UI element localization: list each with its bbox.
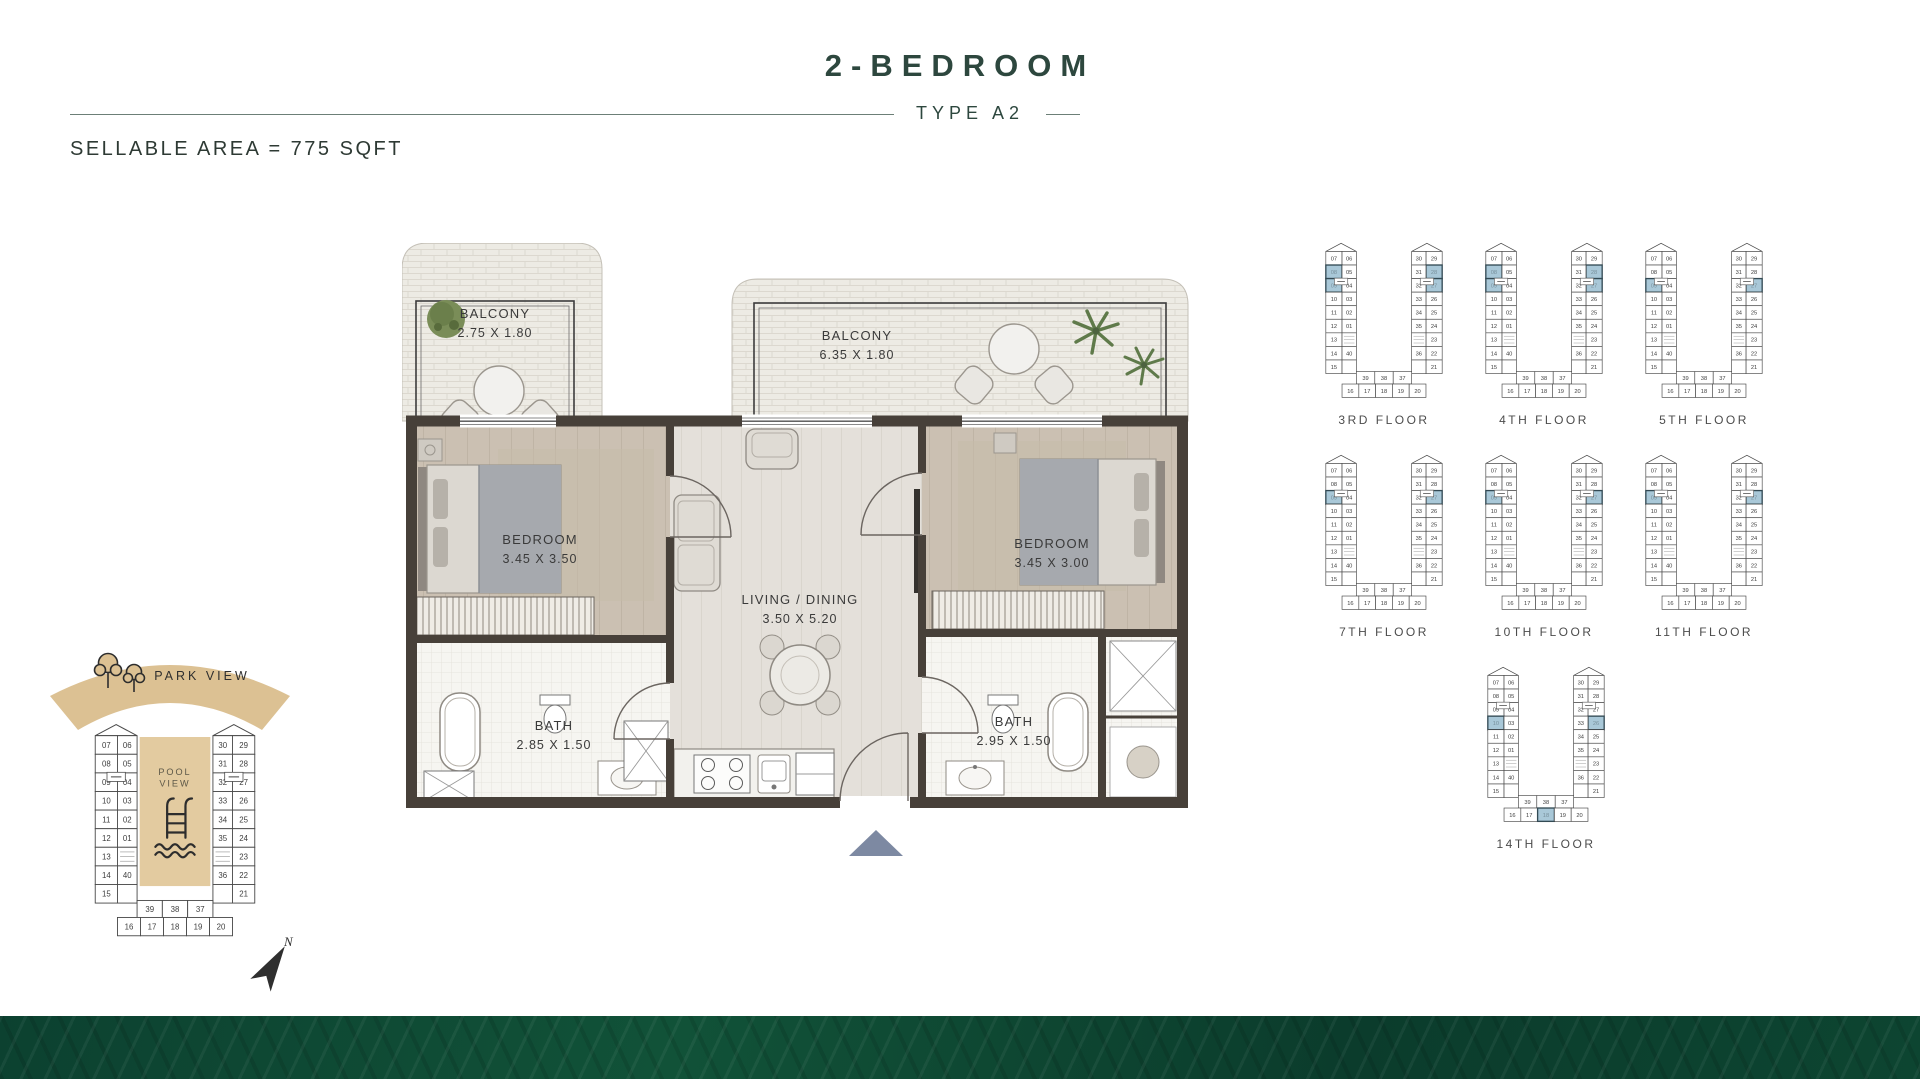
- svg-text:10: 10: [1491, 297, 1497, 303]
- wardrobe-right-icon: [932, 591, 1104, 629]
- svg-text:23: 23: [239, 852, 248, 861]
- svg-text:17: 17: [1364, 389, 1370, 395]
- svg-text:25: 25: [1431, 311, 1437, 317]
- svg-text:31: 31: [1736, 270, 1742, 276]
- svg-text:06: 06: [1666, 256, 1672, 262]
- floor-plan: BALCONY2.75 X 1.80 BALCONY6.35 X 1.80 BE…: [402, 243, 1192, 869]
- svg-text:29: 29: [1591, 468, 1597, 474]
- svg-text:13: 13: [1331, 550, 1337, 556]
- svg-text:12: 12: [1651, 324, 1657, 330]
- svg-text:26: 26: [1751, 297, 1757, 303]
- svg-text:36: 36: [1416, 563, 1422, 569]
- svg-text:23: 23: [1591, 338, 1597, 344]
- svg-text:03: 03: [1508, 721, 1514, 727]
- svg-text:40: 40: [1666, 351, 1672, 357]
- svg-text:16: 16: [125, 922, 134, 931]
- svg-text:19: 19: [1560, 813, 1566, 819]
- svg-text:15: 15: [1491, 365, 1497, 371]
- svg-text:12: 12: [1331, 324, 1337, 330]
- building-plan: 0729063008280531092704321026033311250234…: [1322, 240, 1446, 400]
- svg-text:24: 24: [239, 834, 248, 843]
- svg-text:06: 06: [1506, 468, 1512, 474]
- park-view-arc: PARK VIEW: [44, 630, 296, 734]
- svg-text:30: 30: [1416, 468, 1422, 474]
- svg-text:21: 21: [1591, 577, 1597, 583]
- svg-text:17: 17: [1526, 813, 1532, 819]
- svg-text:14: 14: [1491, 351, 1498, 357]
- svg-text:07: 07: [1331, 256, 1337, 262]
- svg-text:29: 29: [1593, 680, 1599, 686]
- svg-text:05: 05: [1508, 694, 1514, 700]
- svg-text:37: 37: [1559, 588, 1565, 594]
- svg-text:13: 13: [102, 852, 111, 861]
- svg-text:25: 25: [1431, 523, 1437, 529]
- svg-text:11: 11: [1491, 523, 1497, 529]
- svg-text:26: 26: [239, 797, 248, 806]
- svg-text:33: 33: [1416, 297, 1422, 303]
- svg-text:07: 07: [1491, 256, 1497, 262]
- svg-text:12: 12: [1331, 536, 1337, 542]
- floor-label: 11TH FLOOR: [1642, 625, 1766, 639]
- svg-text:12: 12: [1651, 536, 1657, 542]
- svg-text:18: 18: [1541, 389, 1547, 395]
- svg-text:06: 06: [1346, 256, 1352, 262]
- unit-type-label: TYPE A2: [898, 103, 1042, 124]
- svg-text:03: 03: [1346, 297, 1352, 303]
- svg-text:24: 24: [1431, 324, 1438, 330]
- svg-text:01: 01: [1506, 324, 1512, 330]
- svg-text:33: 33: [1416, 509, 1422, 515]
- svg-text:39: 39: [1524, 800, 1530, 806]
- svg-text:38: 38: [1701, 588, 1707, 594]
- entry-arrow-icon: [849, 830, 903, 856]
- svg-text:30: 30: [218, 741, 227, 750]
- svg-text:06: 06: [1346, 468, 1352, 474]
- svg-text:20: 20: [1414, 389, 1420, 395]
- svg-text:01: 01: [1346, 536, 1352, 542]
- svg-text:17: 17: [148, 922, 157, 931]
- svg-text:18: 18: [1381, 601, 1387, 607]
- svg-text:35: 35: [218, 834, 227, 843]
- svg-text:34: 34: [1578, 735, 1585, 741]
- svg-text:39: 39: [1522, 376, 1528, 382]
- svg-text:18: 18: [171, 922, 180, 931]
- svg-text:28: 28: [1591, 482, 1597, 488]
- page-title: 2-BEDROOM: [0, 48, 1920, 84]
- svg-text:34: 34: [1576, 523, 1583, 529]
- svg-text:01: 01: [1666, 536, 1672, 542]
- svg-text:31: 31: [1576, 482, 1582, 488]
- svg-text:39: 39: [145, 905, 154, 914]
- svg-text:18: 18: [1701, 601, 1707, 607]
- svg-text:40: 40: [1506, 351, 1512, 357]
- svg-text:20: 20: [1734, 389, 1740, 395]
- table-icon: [474, 366, 524, 416]
- svg-text:14: 14: [1331, 351, 1338, 357]
- svg-text:26: 26: [1593, 721, 1599, 727]
- label-bedroom-right: BEDROOM3.45 X 3.00: [1014, 535, 1090, 572]
- svg-text:08: 08: [1331, 270, 1337, 276]
- svg-text:11: 11: [1651, 523, 1657, 529]
- svg-text:07: 07: [1651, 256, 1657, 262]
- svg-text:20: 20: [1414, 601, 1420, 607]
- svg-text:37: 37: [196, 905, 205, 914]
- north-arrow: N: [244, 926, 304, 1000]
- balcony-left-terrace: [402, 243, 602, 442]
- svg-text:14: 14: [1493, 775, 1500, 781]
- svg-text:07: 07: [102, 741, 111, 750]
- svg-text:24: 24: [1751, 536, 1758, 542]
- svg-text:21: 21: [1431, 577, 1437, 583]
- svg-text:21: 21: [1751, 577, 1757, 583]
- svg-text:36: 36: [218, 871, 227, 880]
- svg-text:15: 15: [1331, 577, 1337, 583]
- toilet-icon: [540, 695, 570, 705]
- svg-text:30: 30: [1736, 256, 1742, 262]
- svg-text:11: 11: [1331, 523, 1337, 529]
- svg-text:10: 10: [102, 797, 111, 806]
- svg-text:33: 33: [1736, 297, 1742, 303]
- svg-text:21: 21: [1591, 365, 1597, 371]
- svg-text:POOL: POOL: [158, 767, 191, 777]
- svg-text:34: 34: [1736, 311, 1743, 317]
- svg-text:37: 37: [1719, 588, 1725, 594]
- svg-text:22: 22: [1593, 775, 1599, 781]
- svg-text:35: 35: [1578, 748, 1584, 754]
- svg-text:03: 03: [1666, 297, 1672, 303]
- svg-text:20: 20: [217, 922, 226, 931]
- svg-text:15: 15: [1651, 577, 1657, 583]
- svg-text:17: 17: [1684, 601, 1690, 607]
- svg-text:12: 12: [102, 834, 111, 843]
- svg-text:35: 35: [1416, 324, 1422, 330]
- svg-text:16: 16: [1667, 601, 1673, 607]
- svg-text:19: 19: [1558, 389, 1564, 395]
- svg-text:30: 30: [1576, 468, 1582, 474]
- svg-text:35: 35: [1416, 536, 1422, 542]
- svg-text:35: 35: [1576, 324, 1582, 330]
- svg-text:37: 37: [1719, 376, 1725, 382]
- svg-text:26: 26: [1591, 509, 1597, 515]
- svg-text:06: 06: [1508, 680, 1514, 686]
- svg-text:18: 18: [1541, 601, 1547, 607]
- svg-text:01: 01: [1346, 324, 1352, 330]
- svg-text:30: 30: [1576, 256, 1582, 262]
- balcony-main-terrace: [732, 279, 1188, 421]
- svg-text:21: 21: [1751, 365, 1757, 371]
- svg-text:05: 05: [1346, 482, 1352, 488]
- svg-text:17: 17: [1364, 601, 1370, 607]
- svg-text:11: 11: [102, 815, 110, 824]
- svg-text:22: 22: [239, 871, 248, 880]
- svg-text:29: 29: [239, 741, 248, 750]
- svg-text:08: 08: [1493, 694, 1499, 700]
- svg-text:40: 40: [1346, 563, 1352, 569]
- floor-diagram-7th-floor: 0729063008280531092704321026033311250234…: [1322, 452, 1446, 639]
- svg-text:15: 15: [1651, 365, 1657, 371]
- svg-text:34: 34: [1416, 523, 1423, 529]
- svg-text:38: 38: [1541, 588, 1547, 594]
- svg-text:01: 01: [123, 834, 132, 843]
- svg-text:12: 12: [1491, 536, 1497, 542]
- svg-text:40: 40: [1508, 775, 1514, 781]
- kitchen-icons: [674, 749, 834, 799]
- svg-text:22: 22: [1751, 563, 1757, 569]
- floor-label: 7TH FLOOR: [1322, 625, 1446, 639]
- svg-text:23: 23: [1431, 338, 1437, 344]
- svg-text:39: 39: [1682, 588, 1688, 594]
- svg-text:39: 39: [1682, 376, 1688, 382]
- svg-text:23: 23: [1591, 550, 1597, 556]
- svg-text:36: 36: [1576, 351, 1582, 357]
- label-balcony-left: BALCONY2.75 X 1.80: [458, 305, 533, 342]
- svg-text:15: 15: [1493, 789, 1499, 795]
- brochure-page: 2-BEDROOM TYPE A2 SELLABLE AREA = 775 SQ…: [0, 0, 1920, 1079]
- svg-text:33: 33: [1576, 297, 1582, 303]
- svg-text:11: 11: [1651, 311, 1657, 317]
- svg-text:11: 11: [1491, 311, 1497, 317]
- svg-text:13: 13: [1493, 762, 1499, 768]
- svg-text:18: 18: [1701, 389, 1707, 395]
- svg-text:26: 26: [1431, 297, 1437, 303]
- svg-text:02: 02: [1666, 311, 1672, 317]
- svg-text:31: 31: [1576, 270, 1582, 276]
- svg-text:35: 35: [1736, 324, 1742, 330]
- divider-rule-right: [1046, 114, 1080, 115]
- svg-text:05: 05: [1666, 270, 1672, 276]
- label-bath-left: BATH2.85 X 1.50: [517, 717, 592, 754]
- svg-text:10: 10: [1651, 509, 1657, 515]
- svg-text:15: 15: [1331, 365, 1337, 371]
- sellable-area-label: SELLABLE AREA = 775 SQFT: [70, 138, 403, 161]
- svg-text:05: 05: [1506, 270, 1512, 276]
- label-living-dining: LIVING / DINING3.50 X 5.20: [742, 591, 859, 628]
- svg-text:39: 39: [1522, 588, 1528, 594]
- svg-text:05: 05: [123, 759, 132, 768]
- svg-text:28: 28: [1751, 482, 1757, 488]
- svg-text:38: 38: [171, 905, 180, 914]
- svg-text:40: 40: [123, 871, 132, 880]
- svg-text:20: 20: [1574, 389, 1580, 395]
- svg-text:19: 19: [194, 922, 203, 931]
- svg-text:16: 16: [1667, 389, 1673, 395]
- svg-text:39: 39: [1362, 376, 1368, 382]
- svg-text:36: 36: [1578, 775, 1584, 781]
- floor-diagram-5th-floor: 0729063008280531092704321026033311250234…: [1642, 240, 1766, 427]
- building-plan: 0729063008280531092704321026033311250234…: [1642, 240, 1766, 400]
- svg-text:12: 12: [1491, 324, 1497, 330]
- svg-text:10: 10: [1491, 509, 1497, 515]
- svg-text:01: 01: [1508, 748, 1514, 754]
- svg-text:33: 33: [1736, 509, 1742, 515]
- svg-text:02: 02: [1346, 523, 1352, 529]
- svg-text:24: 24: [1591, 536, 1598, 542]
- floor-diagram-14th-floor: 0729063008280531092704321026033311250234…: [1484, 664, 1608, 851]
- svg-text:12: 12: [1493, 748, 1499, 754]
- svg-text:22: 22: [1431, 563, 1437, 569]
- svg-text:24: 24: [1593, 748, 1600, 754]
- label-bath-right: BATH2.95 X 1.50: [977, 713, 1052, 750]
- svg-text:19: 19: [1398, 601, 1404, 607]
- divider-rule-left: [70, 114, 894, 115]
- building-plan: 0729063008280531092704321026033311250234…: [1482, 240, 1606, 400]
- svg-text:02: 02: [123, 815, 132, 824]
- table-icon: [989, 324, 1039, 374]
- svg-text:31: 31: [1578, 694, 1584, 700]
- svg-text:34: 34: [1736, 523, 1743, 529]
- building-plan: 0729063008280531092704321026033311250234…: [1482, 452, 1606, 612]
- svg-text:28: 28: [239, 759, 248, 768]
- footer-band: [0, 1016, 1920, 1079]
- floor-diagram-3rd-floor: 0729063008280531092704321026033311250234…: [1322, 240, 1446, 427]
- svg-text:36: 36: [1576, 563, 1582, 569]
- svg-text:23: 23: [1593, 762, 1599, 768]
- svg-text:14: 14: [1331, 563, 1338, 569]
- svg-text:38: 38: [1701, 376, 1707, 382]
- svg-text:29: 29: [1431, 468, 1437, 474]
- svg-text:38: 38: [1541, 376, 1547, 382]
- floor-diagram-4th-floor: 0729063008280531092704321026033311250234…: [1482, 240, 1606, 427]
- svg-text:38: 38: [1543, 800, 1549, 806]
- svg-text:37: 37: [1561, 800, 1567, 806]
- svg-text:06: 06: [1666, 468, 1672, 474]
- svg-text:25: 25: [1591, 311, 1597, 317]
- floor-diagram-10th-floor: 0729063008280531092704321026033311250234…: [1482, 452, 1606, 639]
- svg-text:03: 03: [1506, 297, 1512, 303]
- svg-text:19: 19: [1718, 601, 1724, 607]
- svg-text:40: 40: [1506, 563, 1512, 569]
- svg-text:31: 31: [1416, 482, 1422, 488]
- svg-text:34: 34: [218, 815, 227, 824]
- floor-label: 3RD FLOOR: [1322, 413, 1446, 427]
- svg-text:02: 02: [1666, 523, 1672, 529]
- svg-text:14: 14: [1651, 351, 1658, 357]
- svg-text:10: 10: [1493, 721, 1499, 727]
- svg-text:17: 17: [1684, 389, 1690, 395]
- svg-text:05: 05: [1346, 270, 1352, 276]
- floor-label: 14TH FLOOR: [1484, 837, 1608, 851]
- svg-text:03: 03: [1666, 509, 1672, 515]
- building-plan: 0729063008280531092704321026033311250234…: [1642, 452, 1766, 612]
- svg-text:07: 07: [1491, 468, 1497, 474]
- svg-text:06: 06: [123, 741, 132, 750]
- svg-text:13: 13: [1331, 338, 1337, 344]
- svg-text:28: 28: [1591, 270, 1597, 276]
- svg-text:02: 02: [1346, 311, 1352, 317]
- svg-text:25: 25: [1593, 735, 1599, 741]
- svg-text:16: 16: [1347, 601, 1353, 607]
- svg-text:16: 16: [1347, 389, 1353, 395]
- svg-text:26: 26: [1431, 509, 1437, 515]
- svg-text:28: 28: [1593, 694, 1599, 700]
- svg-text:19: 19: [1558, 601, 1564, 607]
- svg-text:37: 37: [1559, 376, 1565, 382]
- svg-text:22: 22: [1591, 563, 1597, 569]
- svg-text:15: 15: [102, 890, 111, 899]
- svg-text:01: 01: [1506, 536, 1512, 542]
- svg-text:30: 30: [1416, 256, 1422, 262]
- floor-label: 5TH FLOOR: [1642, 413, 1766, 427]
- svg-text:36: 36: [1416, 351, 1422, 357]
- svg-text:25: 25: [1751, 523, 1757, 529]
- svg-text:16: 16: [1509, 813, 1515, 819]
- key-plan-building: POOLVIEW07290630082805310927043210260333…: [90, 720, 260, 945]
- stove-icon: [694, 755, 750, 793]
- svg-text:08: 08: [1331, 482, 1337, 488]
- svg-text:23: 23: [1431, 550, 1437, 556]
- svg-text:21: 21: [1431, 365, 1437, 371]
- dining-table-icon: [770, 645, 830, 705]
- svg-text:14: 14: [1491, 563, 1498, 569]
- svg-text:21: 21: [1593, 789, 1599, 795]
- svg-text:34: 34: [1576, 311, 1583, 317]
- svg-text:10: 10: [1331, 509, 1337, 515]
- svg-text:39: 39: [1362, 588, 1368, 594]
- label-balcony-main: BALCONY6.35 X 1.80: [820, 327, 895, 364]
- sofa-icon: [674, 495, 720, 591]
- svg-text:13: 13: [1491, 550, 1497, 556]
- svg-text:08: 08: [1491, 482, 1497, 488]
- svg-text:20: 20: [1734, 601, 1740, 607]
- svg-text:31: 31: [218, 759, 227, 768]
- svg-text:29: 29: [1751, 468, 1757, 474]
- svg-text:17: 17: [1524, 389, 1530, 395]
- svg-text:36: 36: [1736, 351, 1742, 357]
- svg-text:36: 36: [1736, 563, 1742, 569]
- svg-text:08: 08: [1651, 270, 1657, 276]
- svg-text:18: 18: [1543, 813, 1549, 819]
- svg-text:14: 14: [102, 871, 111, 880]
- toilet-icon: [988, 695, 1018, 705]
- svg-text:10: 10: [1331, 297, 1337, 303]
- svg-text:33: 33: [218, 797, 227, 806]
- svg-text:26: 26: [1751, 509, 1757, 515]
- svg-text:25: 25: [239, 815, 248, 824]
- svg-text:07: 07: [1331, 468, 1337, 474]
- svg-text:22: 22: [1431, 351, 1437, 357]
- svg-text:07: 07: [1493, 680, 1499, 686]
- svg-text:20: 20: [1576, 813, 1582, 819]
- svg-text:24: 24: [1751, 324, 1758, 330]
- svg-text:40: 40: [1666, 563, 1672, 569]
- svg-text:34: 34: [1416, 311, 1423, 317]
- svg-text:29: 29: [1751, 256, 1757, 262]
- svg-text:03: 03: [1506, 509, 1512, 515]
- svg-text:21: 21: [239, 890, 248, 899]
- building-plan: 0729063008280531092704321026033311250234…: [1484, 664, 1608, 824]
- svg-text:02: 02: [1506, 523, 1512, 529]
- svg-text:08: 08: [102, 759, 111, 768]
- svg-text:37: 37: [1399, 376, 1405, 382]
- svg-text:24: 24: [1591, 324, 1598, 330]
- svg-text:31: 31: [1416, 270, 1422, 276]
- svg-text:29: 29: [1431, 256, 1437, 262]
- svg-text:13: 13: [1491, 338, 1497, 344]
- svg-text:24: 24: [1431, 536, 1438, 542]
- svg-text:11: 11: [1331, 311, 1337, 317]
- svg-text:10: 10: [1651, 297, 1657, 303]
- svg-text:08: 08: [1651, 482, 1657, 488]
- wardrobe-left-icon: [416, 597, 594, 635]
- svg-text:35: 35: [1576, 536, 1582, 542]
- svg-text:03: 03: [123, 797, 132, 806]
- svg-text:31: 31: [1736, 482, 1742, 488]
- floor-label: 4TH FLOOR: [1482, 413, 1606, 427]
- svg-text:11: 11: [1493, 735, 1499, 741]
- svg-text:19: 19: [1398, 389, 1404, 395]
- floor-diagram-11th-floor: 0729063008280531092704321026033311250234…: [1642, 452, 1766, 639]
- svg-text:06: 06: [1506, 256, 1512, 262]
